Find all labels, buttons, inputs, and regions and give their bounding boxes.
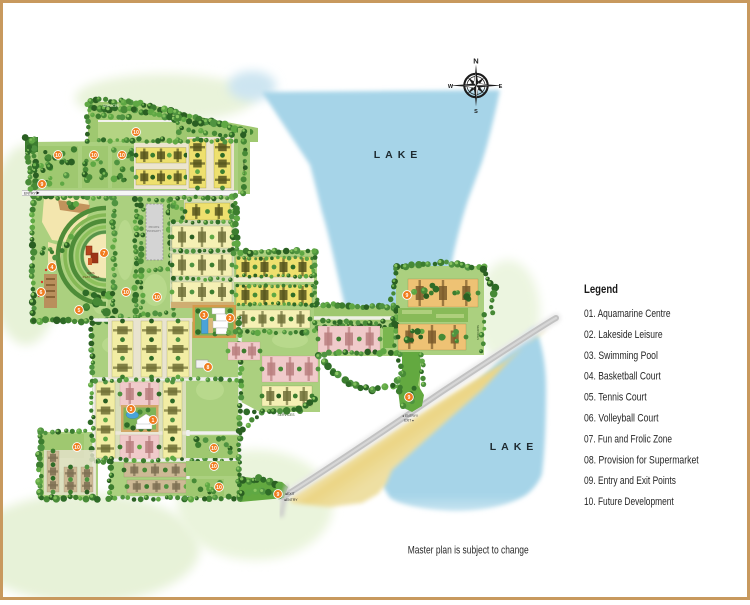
svg-text:●EXIT: ●EXIT — [285, 492, 295, 496]
svg-text:8: 8 — [207, 365, 210, 371]
svg-text:10: 10 — [74, 445, 80, 451]
svg-text:04. Basketball Court: 04. Basketball Court — [584, 371, 661, 383]
svg-text:08. Provision for Supermarket: 08. Provision for Supermarket — [584, 454, 699, 466]
svg-text:10: 10 — [211, 464, 217, 470]
svg-text:10: 10 — [133, 130, 139, 136]
svg-text:10. Future Development: 10. Future Development — [584, 496, 674, 508]
svg-text:1: 1 — [152, 418, 155, 424]
svg-text:SERVICES: SERVICES — [476, 325, 480, 340]
svg-text:10: 10 — [123, 290, 129, 296]
svg-text:01. Aquamarine Centre: 01. Aquamarine Centre — [584, 308, 671, 320]
svg-text:03. Swimming Pool: 03. Swimming Pool — [584, 350, 658, 362]
svg-text:10: 10 — [211, 446, 217, 452]
svg-text:9: 9 — [277, 492, 280, 498]
svg-text:S: S — [474, 109, 478, 115]
svg-text:9: 9 — [406, 293, 409, 299]
svg-text:10: 10 — [91, 153, 97, 159]
svg-text:05. Tennis Court: 05. Tennis Court — [584, 392, 647, 404]
svg-text:10: 10 — [154, 295, 160, 301]
svg-text:5: 5 — [78, 308, 81, 314]
svg-text:PRIVATE: PRIVATE — [149, 225, 160, 229]
svg-text:LAKE: LAKE — [374, 149, 423, 161]
svg-text:Legend: Legend — [584, 284, 618, 296]
svg-text:●ENTRY: ●ENTRY — [284, 498, 298, 502]
svg-text:4: 4 — [51, 265, 54, 271]
svg-text:● ENTRY!!: ● ENTRY!! — [402, 414, 417, 418]
svg-text:02. Lakeside Leisure: 02. Lakeside Leisure — [584, 329, 663, 341]
svg-text:N: N — [473, 57, 478, 66]
svg-text:PROPERTY: PROPERTY — [147, 229, 161, 233]
svg-text:3: 3 — [203, 313, 206, 319]
svg-text:2: 2 — [229, 316, 232, 322]
svg-text:6: 6 — [40, 290, 43, 296]
svg-text:ENTRY: ENTRY — [24, 192, 36, 196]
svg-text:SERVICES: SERVICES — [103, 104, 119, 108]
svg-text:9: 9 — [408, 395, 411, 401]
svg-text:10: 10 — [55, 153, 61, 159]
svg-text:06. Volleyball Court: 06. Volleyball Court — [584, 413, 659, 425]
svg-text:3: 3 — [130, 407, 133, 413]
svg-text:E: E — [499, 84, 503, 90]
svg-text:10: 10 — [119, 153, 125, 159]
svg-text:9: 9 — [41, 182, 44, 188]
svg-text:EXIT ●: EXIT ● — [404, 419, 414, 423]
svg-text:LAKE: LAKE — [490, 441, 539, 453]
svg-text:09. Entry and Exit Points: 09. Entry and Exit Points — [584, 475, 676, 487]
svg-text:07. Fun and Frolic Zone: 07. Fun and Frolic Zone — [584, 433, 672, 445]
svg-text:SECURITY: SECURITY — [242, 160, 246, 175]
svg-text:W: W — [448, 84, 454, 90]
svg-text:Master plan is subject to chan: Master plan is subject to change — [408, 544, 529, 556]
svg-text:7: 7 — [103, 251, 106, 257]
svg-text:PLAY AREA: PLAY AREA — [83, 275, 101, 279]
svg-text:10: 10 — [216, 485, 222, 491]
